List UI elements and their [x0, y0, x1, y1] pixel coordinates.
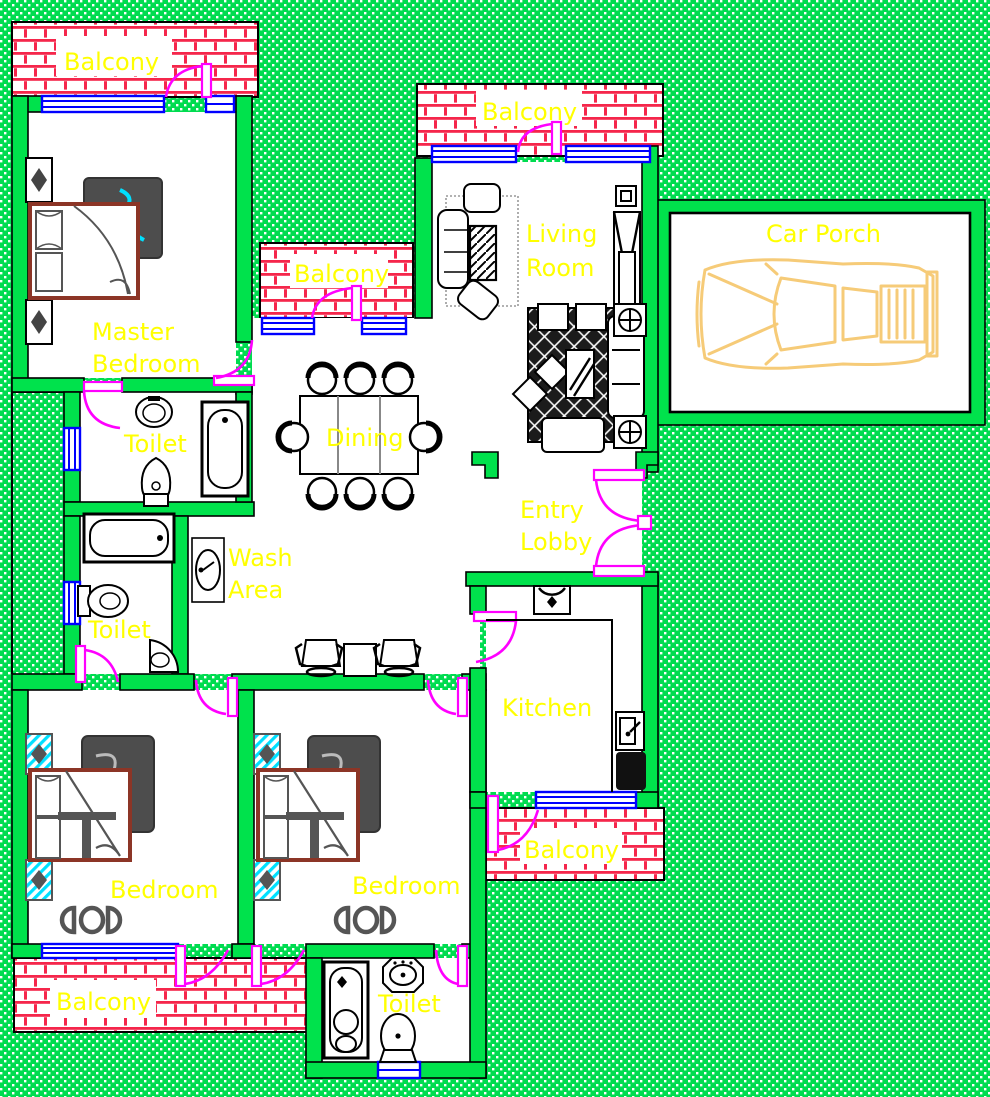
label-dining: Dining	[326, 424, 403, 452]
label-toilet-master: Toilet	[123, 430, 187, 458]
label-toilet-3: Toilet	[377, 990, 441, 1018]
wc	[380, 1014, 416, 1062]
label-entry-1: Entry	[520, 496, 584, 524]
kitchen-sink	[616, 712, 644, 750]
window-mid-balcony-left	[262, 318, 314, 334]
cushion	[576, 304, 606, 330]
stove	[616, 752, 646, 790]
label-car-porch: Car Porch	[766, 220, 881, 248]
label-entry-2: Lobby	[520, 528, 592, 556]
label-living-2: Room	[526, 254, 594, 282]
wc	[78, 585, 128, 617]
bench	[542, 418, 604, 452]
basin	[383, 958, 423, 992]
side-table	[344, 644, 376, 676]
floor-plan-canvas: Balcony Balcony Balcony Living Room Car …	[0, 0, 990, 1097]
side-table-round	[614, 416, 646, 448]
label-toilet-2: Toilet	[87, 616, 151, 644]
floor-plan-svg: Balcony Balcony Balcony Living Room Car …	[0, 0, 990, 1097]
seating-group	[513, 304, 646, 452]
window-bedroom-1	[42, 944, 178, 958]
master-bed	[30, 204, 138, 298]
cushion	[538, 304, 568, 330]
label-balcony-top: Balcony	[482, 98, 577, 126]
side-table-round	[614, 304, 646, 336]
label-wash-2: Area	[228, 576, 283, 604]
label-kitchen: Kitchen	[502, 694, 592, 722]
window-kitchen	[536, 792, 636, 808]
kitchen-basin	[534, 586, 570, 614]
bathtub	[324, 962, 368, 1058]
bed	[258, 770, 358, 860]
window-toilet-3	[378, 1062, 420, 1078]
label-wash-1: Wash	[228, 544, 293, 572]
window-toilet-master	[64, 428, 80, 470]
label-balcony-bottom: Balcony	[56, 988, 151, 1016]
wc	[142, 458, 170, 506]
label-bedroom-1: Bedroom	[110, 876, 219, 904]
label-master-1: Master	[92, 318, 174, 346]
label-living-1: Living	[526, 220, 597, 248]
bathtub	[84, 514, 174, 562]
bathtub	[202, 402, 248, 496]
wash-basin	[192, 538, 224, 602]
window-living-left	[432, 146, 516, 162]
window-living-right	[566, 146, 650, 162]
window-master-top	[42, 96, 164, 112]
label-bedroom-2: Bedroom	[352, 872, 461, 900]
bed	[30, 770, 130, 860]
window-mid-balcony-right	[362, 318, 406, 334]
coffee-table	[470, 226, 496, 280]
label-master-2: Bedroom	[92, 350, 201, 378]
label-balcony-mid: Balcony	[294, 260, 389, 288]
label-balcony-kitchen: Balcony	[524, 836, 619, 864]
label-balcony-top-left: Balcony	[64, 48, 159, 76]
window-master-top-small	[206, 96, 234, 112]
